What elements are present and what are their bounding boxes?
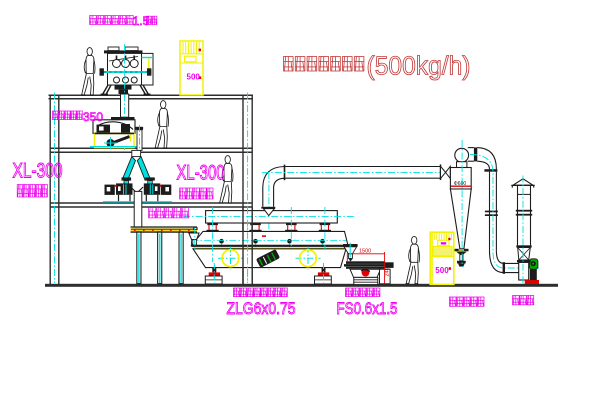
svg-text:XL-300: XL-300 <box>13 160 63 183</box>
svg-text:500: 500 <box>187 72 201 81</box>
svg-text:(500kg/h): (500kg/h) <box>367 53 471 81</box>
svg-text:ZLG6x0.75: ZLG6x0.75 <box>227 300 296 318</box>
svg-text:XL-300: XL-300 <box>177 162 225 185</box>
svg-text:FS0.6x1.5: FS0.6x1.5 <box>337 300 398 318</box>
svg-text:240: 240 <box>385 267 391 276</box>
svg-text:500: 500 <box>435 266 449 275</box>
svg-text:1500: 1500 <box>359 249 371 255</box>
svg-text:350: 350 <box>83 110 103 124</box>
